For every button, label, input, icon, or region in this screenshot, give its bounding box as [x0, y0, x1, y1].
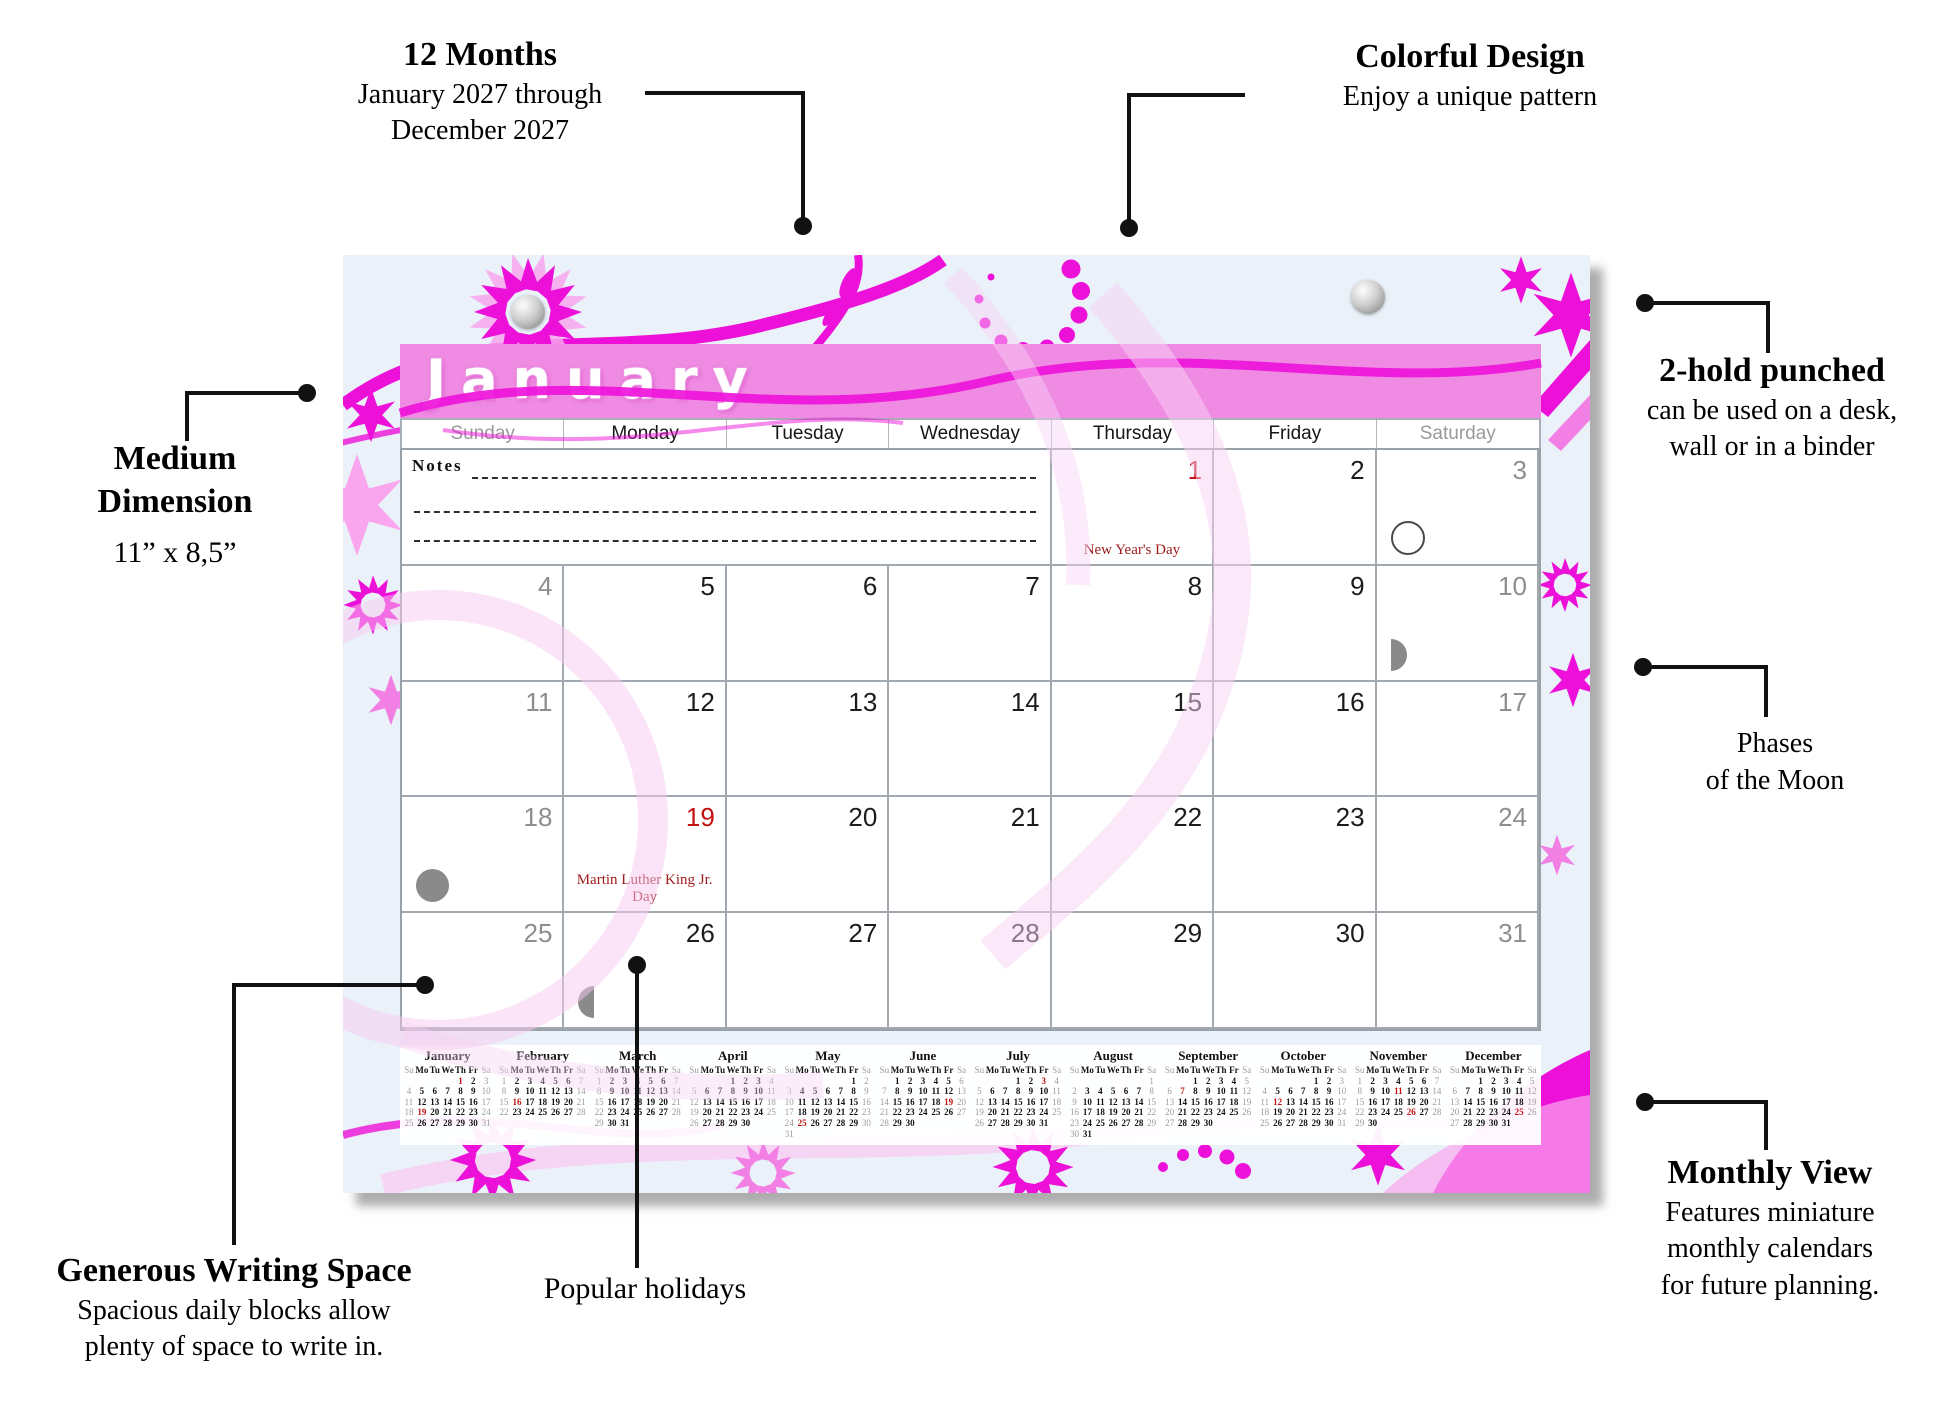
- mini-day: 7: [1461, 1086, 1474, 1097]
- mini-month-name: December: [1446, 1048, 1541, 1065]
- mini-day: 20: [955, 1097, 968, 1108]
- mini-day: 11: [1258, 1097, 1271, 1108]
- mini-day: 24: [1335, 1107, 1348, 1118]
- mini-month-january: JanuarySuMoTuWeThFrSa1234567891011121314…: [400, 1045, 495, 1145]
- mini-day: 5: [1526, 1076, 1539, 1087]
- mini-day: 8: [1310, 1086, 1323, 1097]
- mini-day: 12: [973, 1097, 986, 1108]
- mini-day: 21: [670, 1097, 683, 1108]
- mini-day: 15: [1353, 1097, 1366, 1108]
- mini-empty: [688, 1076, 701, 1087]
- mini-day: 22: [1310, 1107, 1323, 1118]
- mini-day: 29: [593, 1118, 606, 1129]
- callout-title: Monthly View: [1608, 1152, 1932, 1195]
- day-number: 7: [1025, 571, 1039, 602]
- mini-day: 22: [847, 1107, 860, 1118]
- mini-day-header: Fr: [1037, 1065, 1050, 1076]
- mini-day-header: Fr: [942, 1065, 955, 1076]
- mini-day: 26: [549, 1107, 562, 1118]
- mini-day: 1: [454, 1076, 467, 1087]
- day-cell-16: 16: [1214, 682, 1376, 798]
- mini-day: 4: [796, 1086, 809, 1097]
- mini-day-header: Tu: [904, 1065, 917, 1076]
- mini-day: 19: [1107, 1107, 1120, 1118]
- mini-day: 24: [480, 1107, 493, 1118]
- mini-day: 11: [403, 1097, 416, 1108]
- mini-day-header: Sa: [860, 1065, 873, 1076]
- mini-day: 18: [1227, 1097, 1240, 1108]
- day-cell-25: 25: [402, 913, 564, 1029]
- mini-empty: [809, 1076, 822, 1087]
- mini-day: 25: [1392, 1107, 1405, 1118]
- day-number: 10: [1498, 571, 1527, 602]
- day-cell-7: 7: [889, 566, 1051, 682]
- mini-day: 17: [752, 1097, 765, 1108]
- day-cell-15: 15: [1052, 682, 1214, 798]
- notes-writing-line: [472, 477, 1036, 479]
- mini-day: 24: [1215, 1107, 1228, 1118]
- mini-day: 5: [688, 1086, 701, 1097]
- mini-day: 6: [657, 1076, 670, 1087]
- connector-line: [1652, 301, 1770, 305]
- mini-day-header: Fr: [1323, 1065, 1336, 1076]
- mini-month-november: NovemberSuMoTuWeThFrSa123456789101112131…: [1351, 1045, 1446, 1145]
- day-cell-26: 26: [564, 913, 726, 1029]
- mini-day: 2: [1068, 1086, 1081, 1097]
- mini-day-header: Sa: [765, 1065, 778, 1076]
- mini-day: 13: [1418, 1086, 1431, 1097]
- mini-day: 22: [1012, 1107, 1025, 1118]
- mini-day: 20: [701, 1107, 714, 1118]
- weekday-tuesday: Tuesday: [727, 420, 889, 448]
- mini-day: 11: [765, 1086, 778, 1097]
- mini-day-header: We: [1202, 1065, 1215, 1076]
- mini-day: 28: [714, 1118, 727, 1129]
- mini-day: 10: [1379, 1086, 1392, 1097]
- mini-day: 30: [860, 1118, 873, 1129]
- mini-empty: [403, 1076, 416, 1087]
- mini-day-header: Su: [593, 1065, 606, 1076]
- mini-day: 18: [403, 1107, 416, 1118]
- day-cell-31: 31: [1377, 913, 1539, 1029]
- mini-month-name: June: [875, 1048, 970, 1065]
- mini-day: 9: [860, 1086, 873, 1097]
- mini-day: 14: [834, 1097, 847, 1108]
- mini-day: 8: [1474, 1086, 1487, 1097]
- mini-day: 27: [1120, 1118, 1133, 1129]
- mini-empty: [822, 1076, 835, 1087]
- mini-day: 8: [891, 1086, 904, 1097]
- callout-text: 11” x 8,5”: [25, 533, 325, 573]
- day-number: 18: [524, 802, 553, 833]
- holiday-label: Martin Luther King Jr. Day: [564, 872, 724, 906]
- mini-day: 19: [1271, 1107, 1284, 1118]
- third-moon-icon: [1391, 639, 1407, 671]
- mini-day: 24: [523, 1107, 536, 1118]
- day-cell-9: 9: [1214, 566, 1376, 682]
- mini-day: 16: [1487, 1097, 1500, 1108]
- mini-month-name: February: [495, 1048, 590, 1065]
- mini-day: 1: [1310, 1076, 1323, 1087]
- mini-day: 14: [1176, 1097, 1189, 1108]
- day-number: 23: [1336, 802, 1365, 833]
- connector-dot: [1120, 219, 1138, 237]
- callout-text: Popular holidays: [544, 1272, 747, 1305]
- mini-day: 5: [1240, 1076, 1253, 1087]
- mini-month-grid: SuMoTuWeThFrSa12345678910111213141516171…: [878, 1065, 968, 1129]
- mini-day-header: Sa: [955, 1065, 968, 1076]
- day-number: 24: [1498, 802, 1527, 833]
- mini-day-header: Th: [834, 1065, 847, 1076]
- mini-day: 31: [619, 1118, 632, 1129]
- day-cell-28: 28: [889, 913, 1051, 1029]
- mini-day: 5: [1405, 1076, 1418, 1087]
- mini-day: 20: [657, 1097, 670, 1108]
- callout-text: plenty of space to write in.: [8, 1329, 460, 1366]
- day-cell-19: 19Martin Luther King Jr. Day: [564, 797, 726, 913]
- mini-day: 22: [891, 1107, 904, 1118]
- day-number: 25: [524, 918, 553, 949]
- mini-day: 20: [1418, 1097, 1431, 1108]
- mini-day-header: Tu: [428, 1065, 441, 1076]
- day-cell-11: 11: [402, 682, 564, 798]
- mini-day: 9: [1024, 1086, 1037, 1097]
- mini-empty: [1132, 1076, 1145, 1087]
- mini-day: 4: [1513, 1076, 1526, 1087]
- mini-day-header: Sa: [1430, 1065, 1443, 1076]
- mini-day: 10: [783, 1097, 796, 1108]
- mini-month-name: April: [685, 1048, 780, 1065]
- mini-day: 17: [1379, 1097, 1392, 1108]
- mini-day: 28: [1297, 1118, 1310, 1129]
- mini-day: 17: [480, 1097, 493, 1108]
- mini-day: 8: [454, 1086, 467, 1097]
- mini-day: 17: [1215, 1097, 1228, 1108]
- mini-day: 5: [973, 1086, 986, 1097]
- mini-day: 16: [1024, 1097, 1037, 1108]
- mini-empty: [834, 1076, 847, 1087]
- mini-day: 14: [441, 1097, 454, 1108]
- day-number: 13: [848, 687, 877, 718]
- mini-day: 14: [1430, 1086, 1443, 1097]
- mini-day-header: Th: [549, 1065, 562, 1076]
- mini-day: 20: [428, 1107, 441, 1118]
- mini-day: 14: [878, 1097, 891, 1108]
- mini-day: 6: [1163, 1086, 1176, 1097]
- mini-day-header: Th: [739, 1065, 752, 1076]
- mini-day: 11: [1227, 1086, 1240, 1097]
- connector-line: [1650, 665, 1768, 669]
- day-cell-6: 6: [727, 566, 889, 682]
- mini-day: 24: [1379, 1107, 1392, 1118]
- mini-day-header: We: [441, 1065, 454, 1076]
- mini-day-header: Th: [454, 1065, 467, 1076]
- mini-day: 25: [1258, 1118, 1271, 1129]
- mini-day-header: Mo: [1081, 1065, 1094, 1076]
- mini-day: 27: [562, 1107, 575, 1118]
- day-number: 1: [1188, 455, 1202, 486]
- mini-day: 13: [955, 1086, 968, 1097]
- mini-day: 25: [765, 1107, 778, 1118]
- mini-day: 2: [1366, 1076, 1379, 1087]
- mini-month-grid: SuMoTuWeThFrSa12345678910111213141516171…: [973, 1065, 1063, 1129]
- mini-empty: [783, 1076, 796, 1087]
- mini-day: 19: [1405, 1097, 1418, 1108]
- mini-day: 3: [917, 1076, 930, 1087]
- mini-day: 2: [510, 1076, 523, 1087]
- mini-day: 21: [1176, 1107, 1189, 1118]
- mini-day: 24: [783, 1118, 796, 1129]
- mini-day-header: Fr: [467, 1065, 480, 1076]
- mini-day: 19: [1240, 1097, 1253, 1108]
- mini-empty: [1461, 1076, 1474, 1087]
- mini-day-header: We: [917, 1065, 930, 1076]
- day-number: 6: [863, 571, 877, 602]
- mini-day: 20: [1448, 1107, 1461, 1118]
- mini-day: 9: [904, 1086, 917, 1097]
- mini-empty: [1081, 1076, 1094, 1087]
- mini-day: 11: [929, 1086, 942, 1097]
- mini-day: 22: [1189, 1107, 1202, 1118]
- mini-day-header: Mo: [1271, 1065, 1284, 1076]
- mini-month-grid: SuMoTuWeThFrSa12345678910111213141516171…: [403, 1065, 493, 1129]
- mini-day: 15: [1310, 1097, 1323, 1108]
- mini-day: 27: [955, 1107, 968, 1118]
- mini-day: 19: [549, 1097, 562, 1108]
- mini-day: 20: [1163, 1107, 1176, 1118]
- mini-day: 25: [536, 1107, 549, 1118]
- mini-day: 14: [575, 1086, 588, 1097]
- mini-empty: [1107, 1076, 1120, 1087]
- mini-day-header: Sa: [1526, 1065, 1539, 1076]
- day-number: 11: [525, 687, 552, 718]
- notes-label: Notes: [412, 456, 463, 476]
- mini-day: 12: [415, 1097, 428, 1108]
- day-cell-20: 20: [727, 797, 889, 913]
- connector-line: [645, 91, 805, 95]
- mini-day: 9: [510, 1086, 523, 1097]
- mini-day: 26: [942, 1107, 955, 1118]
- mini-empty: [973, 1076, 986, 1087]
- mini-day: 2: [1323, 1076, 1336, 1087]
- mini-month-grid: SuMoTuWeThFrSa12345678910111213141516171…: [1448, 1065, 1538, 1129]
- mini-day: 19: [688, 1107, 701, 1118]
- mini-day: 4: [1227, 1076, 1240, 1087]
- holiday-label: New Year's Day: [1052, 542, 1212, 559]
- mini-day: 13: [428, 1097, 441, 1108]
- mini-day-header: Su: [1068, 1065, 1081, 1076]
- mini-day: 1: [1012, 1076, 1025, 1087]
- mini-day: 9: [1487, 1086, 1500, 1097]
- mini-day: 6: [428, 1086, 441, 1097]
- mini-day: 10: [1335, 1086, 1348, 1097]
- mini-day: 21: [834, 1107, 847, 1118]
- connector-line: [232, 983, 420, 987]
- mini-day-header: Sa: [480, 1065, 493, 1076]
- weekday-saturday: Saturday: [1377, 420, 1539, 448]
- mini-day: 23: [1024, 1107, 1037, 1118]
- mini-day: 4: [765, 1076, 778, 1087]
- mini-day: 8: [1353, 1086, 1366, 1097]
- mini-day: 9: [606, 1086, 619, 1097]
- day-cell-13: 13: [727, 682, 889, 798]
- mini-day: 10: [752, 1086, 765, 1097]
- mini-day: 19: [942, 1097, 955, 1108]
- mini-day: 17: [1500, 1097, 1513, 1108]
- day-number: 2: [1350, 455, 1364, 486]
- mini-day-header: Mo: [415, 1065, 428, 1076]
- mini-day-header: Su: [498, 1065, 511, 1076]
- mini-day: 5: [549, 1076, 562, 1087]
- mini-day: 3: [1379, 1076, 1392, 1087]
- mini-day: 27: [428, 1118, 441, 1129]
- mini-day: 6: [1284, 1086, 1297, 1097]
- mini-day: 18: [1094, 1107, 1107, 1118]
- mini-day-header: Su: [973, 1065, 986, 1076]
- mini-day: 23: [860, 1107, 873, 1118]
- mini-day: 29: [1310, 1118, 1323, 1129]
- mini-day: 18: [1050, 1097, 1063, 1108]
- mini-day: 24: [1081, 1118, 1094, 1129]
- mini-day-header: We: [1487, 1065, 1500, 1076]
- mini-day: 29: [1189, 1118, 1202, 1129]
- mini-day: 15: [1012, 1097, 1025, 1108]
- mini-day: 21: [1461, 1107, 1474, 1118]
- mini-month-august: AugustSuMoTuWeThFrSa12345678910111213141…: [1066, 1045, 1161, 1145]
- mini-day: 28: [834, 1118, 847, 1129]
- connector-line: [1127, 93, 1245, 97]
- mini-day-header: Tu: [714, 1065, 727, 1076]
- mini-day-header: Th: [1500, 1065, 1513, 1076]
- mini-day: 17: [1335, 1097, 1348, 1108]
- mini-month-name: October: [1256, 1048, 1351, 1065]
- callout-2-hole-punched: 2-hold punched can be used on a desk, wa…: [1598, 350, 1946, 466]
- callout-title: 12 Months: [180, 34, 780, 77]
- mini-day-header: Fr: [657, 1065, 670, 1076]
- callout-text: for future planning.: [1608, 1268, 1932, 1305]
- mini-day: 23: [739, 1107, 752, 1118]
- connector-line: [1764, 1100, 1768, 1150]
- mini-day: 27: [1284, 1118, 1297, 1129]
- mini-day-header: Tu: [1189, 1065, 1202, 1076]
- mini-day: 10: [917, 1086, 930, 1097]
- mini-empty: [796, 1076, 809, 1087]
- mini-day: 5: [942, 1076, 955, 1087]
- mini-day: 6: [1448, 1086, 1461, 1097]
- mini-day: 24: [1037, 1107, 1050, 1118]
- mini-empty: [1176, 1076, 1189, 1087]
- day-number: 27: [848, 918, 877, 949]
- mini-day: 10: [523, 1086, 536, 1097]
- mini-day: 17: [917, 1097, 930, 1108]
- mini-day: 20: [986, 1107, 999, 1118]
- mini-day: 2: [739, 1076, 752, 1087]
- mini-day-header: Mo: [1461, 1065, 1474, 1076]
- callout-text: monthly calendars: [1608, 1231, 1932, 1268]
- mini-day-header: Th: [1405, 1065, 1418, 1076]
- mini-day: 18: [536, 1097, 549, 1108]
- callout-colorful-design: Colorful Design Enjoy a unique pattern: [1170, 36, 1770, 115]
- callout-title: Medium: [25, 438, 325, 481]
- mini-day: 4: [1050, 1076, 1063, 1087]
- day-cell-21: 21: [889, 797, 1051, 913]
- mini-day: 27: [1418, 1107, 1431, 1118]
- mini-day: 31: [1500, 1118, 1513, 1129]
- mini-empty: [1448, 1076, 1461, 1087]
- mini-day-header: Fr: [1227, 1065, 1240, 1076]
- mini-day: 26: [973, 1118, 986, 1129]
- mini-empty: [441, 1076, 454, 1087]
- callout-medium-dimension: Medium Dimension 11” x 8,5”: [25, 438, 325, 573]
- mini-day: 31: [1037, 1118, 1050, 1129]
- mini-day: 5: [644, 1076, 657, 1087]
- mini-day: 9: [1202, 1086, 1215, 1097]
- mini-day: 17: [523, 1097, 536, 1108]
- mini-day-header: Mo: [796, 1065, 809, 1076]
- mini-day: 24: [619, 1107, 632, 1118]
- callout-text: Enjoy a unique pattern: [1170, 79, 1770, 116]
- mini-day: 27: [657, 1107, 670, 1118]
- mini-day: 13: [822, 1097, 835, 1108]
- mini-day: 4: [1094, 1086, 1107, 1097]
- mini-day: 29: [1012, 1118, 1025, 1129]
- mini-day: 21: [441, 1107, 454, 1118]
- mini-day: 5: [809, 1086, 822, 1097]
- mini-day: 20: [822, 1107, 835, 1118]
- day-number: 22: [1173, 802, 1202, 833]
- mini-day: 23: [1323, 1107, 1336, 1118]
- mini-day: 3: [783, 1086, 796, 1097]
- mini-day: 29: [847, 1118, 860, 1129]
- mini-empty: [1284, 1076, 1297, 1087]
- mini-day: 1: [891, 1076, 904, 1087]
- mini-day-header: Mo: [1366, 1065, 1379, 1076]
- mini-day: 21: [999, 1107, 1012, 1118]
- mini-day-header: Su: [783, 1065, 796, 1076]
- connector-line: [232, 983, 236, 1245]
- mini-day: 28: [670, 1107, 683, 1118]
- callout-title: Dimension: [25, 481, 325, 524]
- mini-day: 13: [1284, 1097, 1297, 1108]
- mini-day: 12: [942, 1086, 955, 1097]
- notes-writing-line: [414, 511, 1036, 513]
- mini-day: 1: [847, 1076, 860, 1087]
- mini-day-header: Th: [1120, 1065, 1133, 1076]
- mini-day: 3: [1081, 1086, 1094, 1097]
- day-number: 3: [1513, 455, 1527, 486]
- mini-day: 27: [701, 1118, 714, 1129]
- mini-day: 11: [1392, 1086, 1405, 1097]
- mini-day: 1: [498, 1076, 511, 1087]
- mini-empty: [1120, 1076, 1133, 1087]
- product-infographic: 12 Months January 2027 through December …: [0, 0, 1946, 1421]
- mini-month-july: JulySuMoTuWeThFrSa1234567891011121314151…: [970, 1045, 1065, 1145]
- mini-day-header: Th: [1215, 1065, 1228, 1076]
- callout-popular-holidays: Popular holidays: [478, 1272, 812, 1306]
- mini-day: 26: [1271, 1118, 1284, 1129]
- mini-day: 26: [1240, 1107, 1253, 1118]
- mini-day: 1: [1353, 1076, 1366, 1087]
- day-cell-27: 27: [727, 913, 889, 1029]
- month-title-band: January: [400, 344, 1541, 418]
- mini-day: 12: [1526, 1086, 1539, 1097]
- mini-day-header: Tu: [999, 1065, 1012, 1076]
- mini-day: 10: [480, 1086, 493, 1097]
- mini-day: 14: [714, 1097, 727, 1108]
- mini-day: 22: [726, 1107, 739, 1118]
- mini-day: 16: [606, 1097, 619, 1108]
- day-number: 12: [686, 687, 715, 718]
